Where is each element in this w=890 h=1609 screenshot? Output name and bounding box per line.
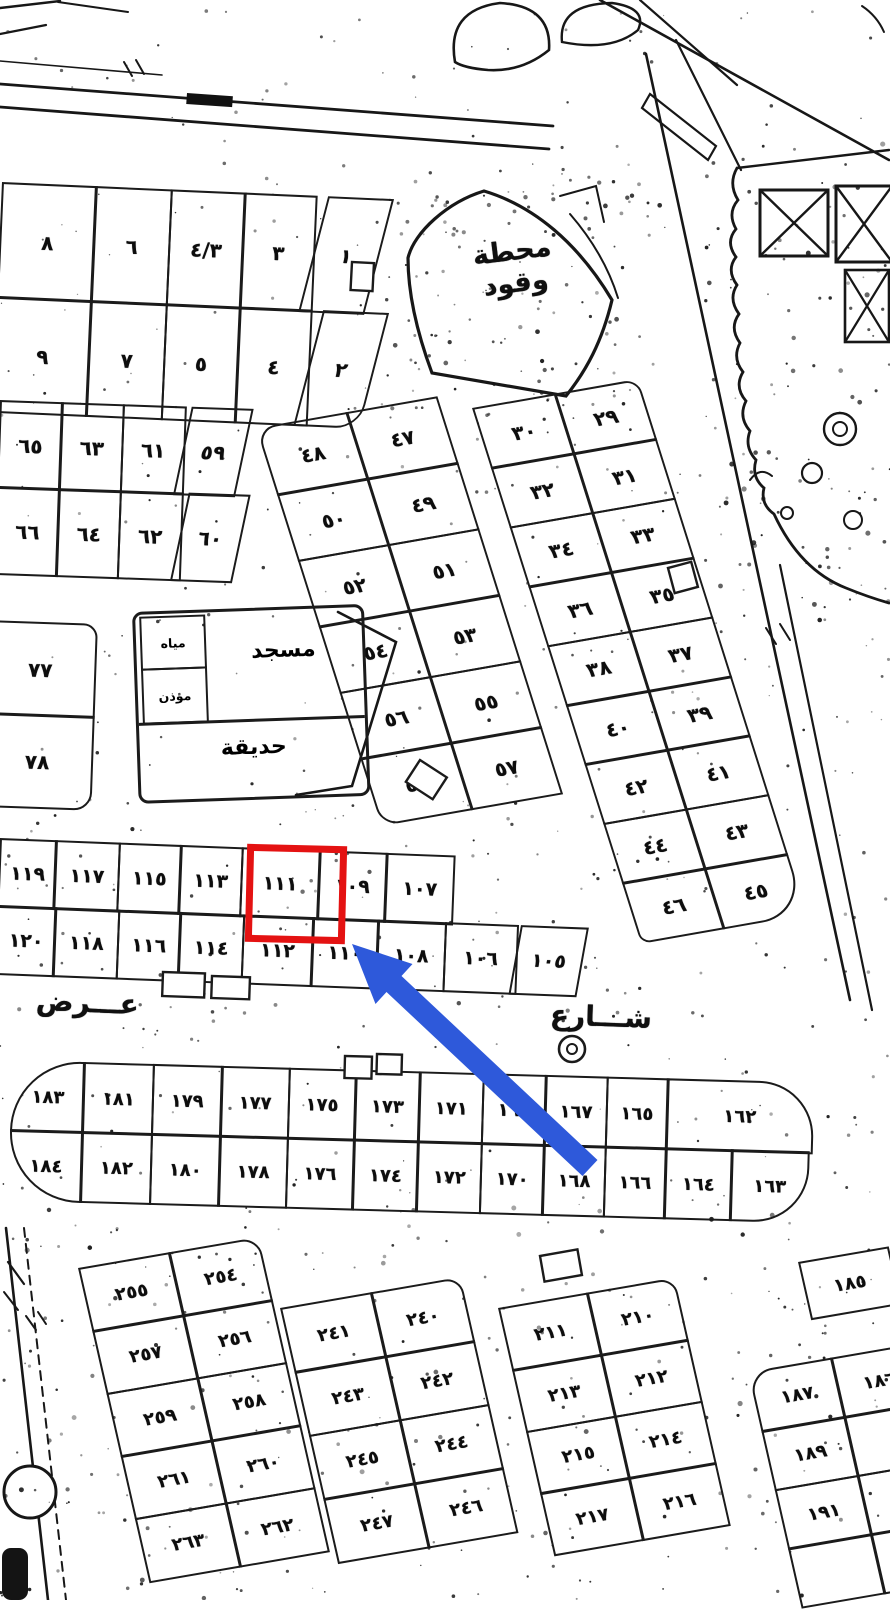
street-label-ard: عـــرض	[35, 984, 139, 1021]
plot-cell: ١٦٢	[665, 1078, 815, 1154]
utility-room-label: مياه	[160, 635, 185, 651]
plot-block-59-66: ٦٥٦٣٦١٥٩٦٦٦٤٦٢٦٠	[0, 400, 243, 581]
plot-cell: ٢١٧	[540, 1477, 645, 1557]
plot-cell: ١٧٨	[217, 1135, 289, 1209]
plot-cell: ٢٤٧	[323, 1482, 431, 1564]
plot-cell: ١٧١	[417, 1071, 485, 1145]
plot-cell: ١١٣	[177, 845, 244, 917]
plot-cell: ١٨٢	[79, 1131, 153, 1205]
plot-block-163-184: ١٨٣١٨١١٧٩١٧٧١٧٥١٧٣١٧١١٦٩١٦٧١٦٥١٦٢١٨٤١٨٢١…	[8, 1060, 812, 1221]
scanned-plot-map: ٨٦٤/٣٣١٩٧٥٤٢ ٦٥٦٣٦١٥٩٦٦٦٤٦٢٦٠ ٧٧٧٨ ٤٨٤٧٥…	[0, 0, 890, 1600]
plot-cell: ٢٦٣	[135, 1502, 242, 1583]
road-mark	[186, 93, 233, 107]
plot-cell: ١٨١	[81, 1062, 155, 1136]
plot-block-254-263: ٢٥٥٢٥٤٢٥٧٢٥٦٢٥٩٢٥٨٢٦١٢٦٠٢٦٣٢٦٢	[78, 1237, 327, 1580]
plot-cell: ١٧٧	[219, 1066, 291, 1140]
fuel-station-label: محطة وقود	[433, 227, 596, 310]
utility-room-label: مؤذن	[158, 687, 191, 703]
plot-cell: ١١٤	[177, 912, 246, 984]
plot-cell: ١١٦	[115, 910, 182, 982]
plot-cell: ٥٧	[450, 726, 564, 811]
plot-cell: ١١٨	[52, 908, 121, 980]
plot-cell: ١٨٣	[10, 1060, 86, 1134]
garden-label: حديقة	[177, 732, 330, 762]
plot-cell: ١٧٤	[351, 1139, 420, 1213]
plot-cell: ١١٥	[116, 843, 183, 915]
plot-cell: ٧٧	[0, 620, 98, 719]
utility-room-water: مياه	[139, 614, 207, 670]
plot-cell: ٢٤٦	[413, 1467, 519, 1549]
plot-block-210-217: ٢١١٢١٠٢١٣٢١٢٢١٥٢١٤٢١٧٢١٦	[498, 1278, 728, 1554]
plot-block-77-78: ٧٧٧٨	[0, 620, 95, 809]
plot-cell: ٦٦	[0, 486, 61, 577]
plot-cell: ١٧٥	[287, 1068, 358, 1142]
plot-cell: ١٦٥	[604, 1077, 669, 1151]
plot-cell: ١١٧	[53, 840, 122, 912]
plot-cell: ٢٦٢	[225, 1487, 330, 1568]
plot-cell: ١٧٣	[353, 1070, 422, 1144]
plot-cell: ٦	[90, 186, 173, 306]
highlight-box-plot-111	[245, 844, 347, 944]
plot-cell: ١٨٤	[8, 1129, 84, 1203]
plot-cell: ١٠٨	[375, 920, 448, 993]
plot-cell: ١٨٥	[798, 1246, 890, 1320]
plot-cell: ٩	[0, 296, 93, 417]
plot-cell: ١٦٧	[543, 1075, 609, 1149]
plot-cell: ٤/٣	[166, 189, 247, 309]
plot-cell: ١٦٤	[663, 1148, 734, 1222]
plot-cell: ١٦٣	[729, 1150, 810, 1224]
plot-cell: ١١٩	[0, 838, 58, 910]
plot-cell: ١٧٢	[415, 1141, 483, 1215]
plot-cell: ١٦٨	[541, 1144, 607, 1218]
plot-cell: ٧٨	[0, 712, 95, 811]
plot-block-186-191: ١٨٧١٨٦١٨٩١٩١	[748, 1344, 890, 1607]
utility-room-muezzin: مؤذن	[141, 666, 209, 724]
plot-block-185: ١٨٥	[798, 1247, 890, 1318]
plot-cell: ١٠٧	[383, 853, 456, 926]
plot-cell: ١٧٠	[479, 1143, 546, 1217]
plot-cell: ٦٣	[58, 402, 125, 493]
plot-cell: ٢١٦	[628, 1462, 731, 1541]
mosque-label: مسجد	[212, 635, 355, 665]
plot-cell: ١٧٦	[285, 1137, 356, 1211]
plot-cell: ١٧٩	[151, 1064, 224, 1138]
plot-cell: ١٦٦	[602, 1146, 667, 1220]
plot-cell: ٦٤	[55, 488, 122, 579]
plot-cell: ١٠٦	[442, 923, 519, 996]
plot-cell: ٤٥	[704, 853, 808, 930]
street-label-share: شـــارع	[549, 998, 652, 1035]
plot-block-1-9: ٨٦٤/٣٣١٩٧٥٤٢	[0, 182, 379, 427]
plot-cell: ١٢٠	[0, 905, 57, 977]
plot-cell: ١٦٩	[481, 1073, 548, 1147]
plot-cell: ١٠٥	[509, 925, 589, 997]
plot-cell: ٦٥	[0, 400, 64, 491]
mosque-garden-block: مياه مؤذن مسجد حديقة	[132, 604, 371, 804]
plot-cell: ٨	[0, 182, 98, 303]
scan-blob	[2, 1548, 28, 1600]
plot-cell: ١٨٠	[149, 1133, 222, 1207]
